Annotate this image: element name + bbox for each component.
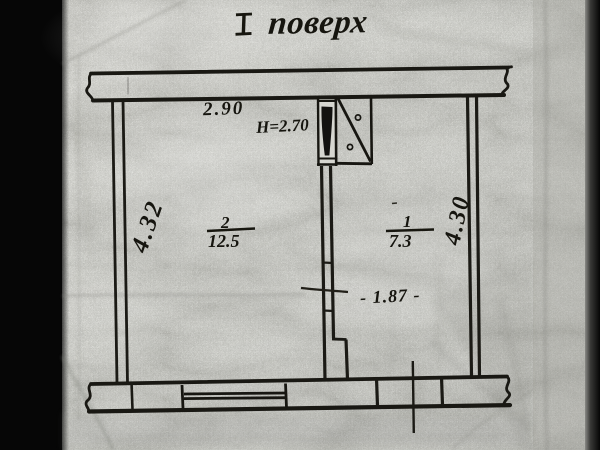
svg-text:- 1.87 -: - 1.87 - [360,285,421,308]
svg-text:7.3: 7.3 [389,231,412,251]
svg-text:12.5: 12.5 [208,231,240,251]
svg-text:1: 1 [403,212,412,231]
svg-text:поверх: поверх [267,4,369,42]
svg-text:2.90: 2.90 [202,98,245,120]
svg-text:H=2.70: H=2.70 [255,115,310,137]
